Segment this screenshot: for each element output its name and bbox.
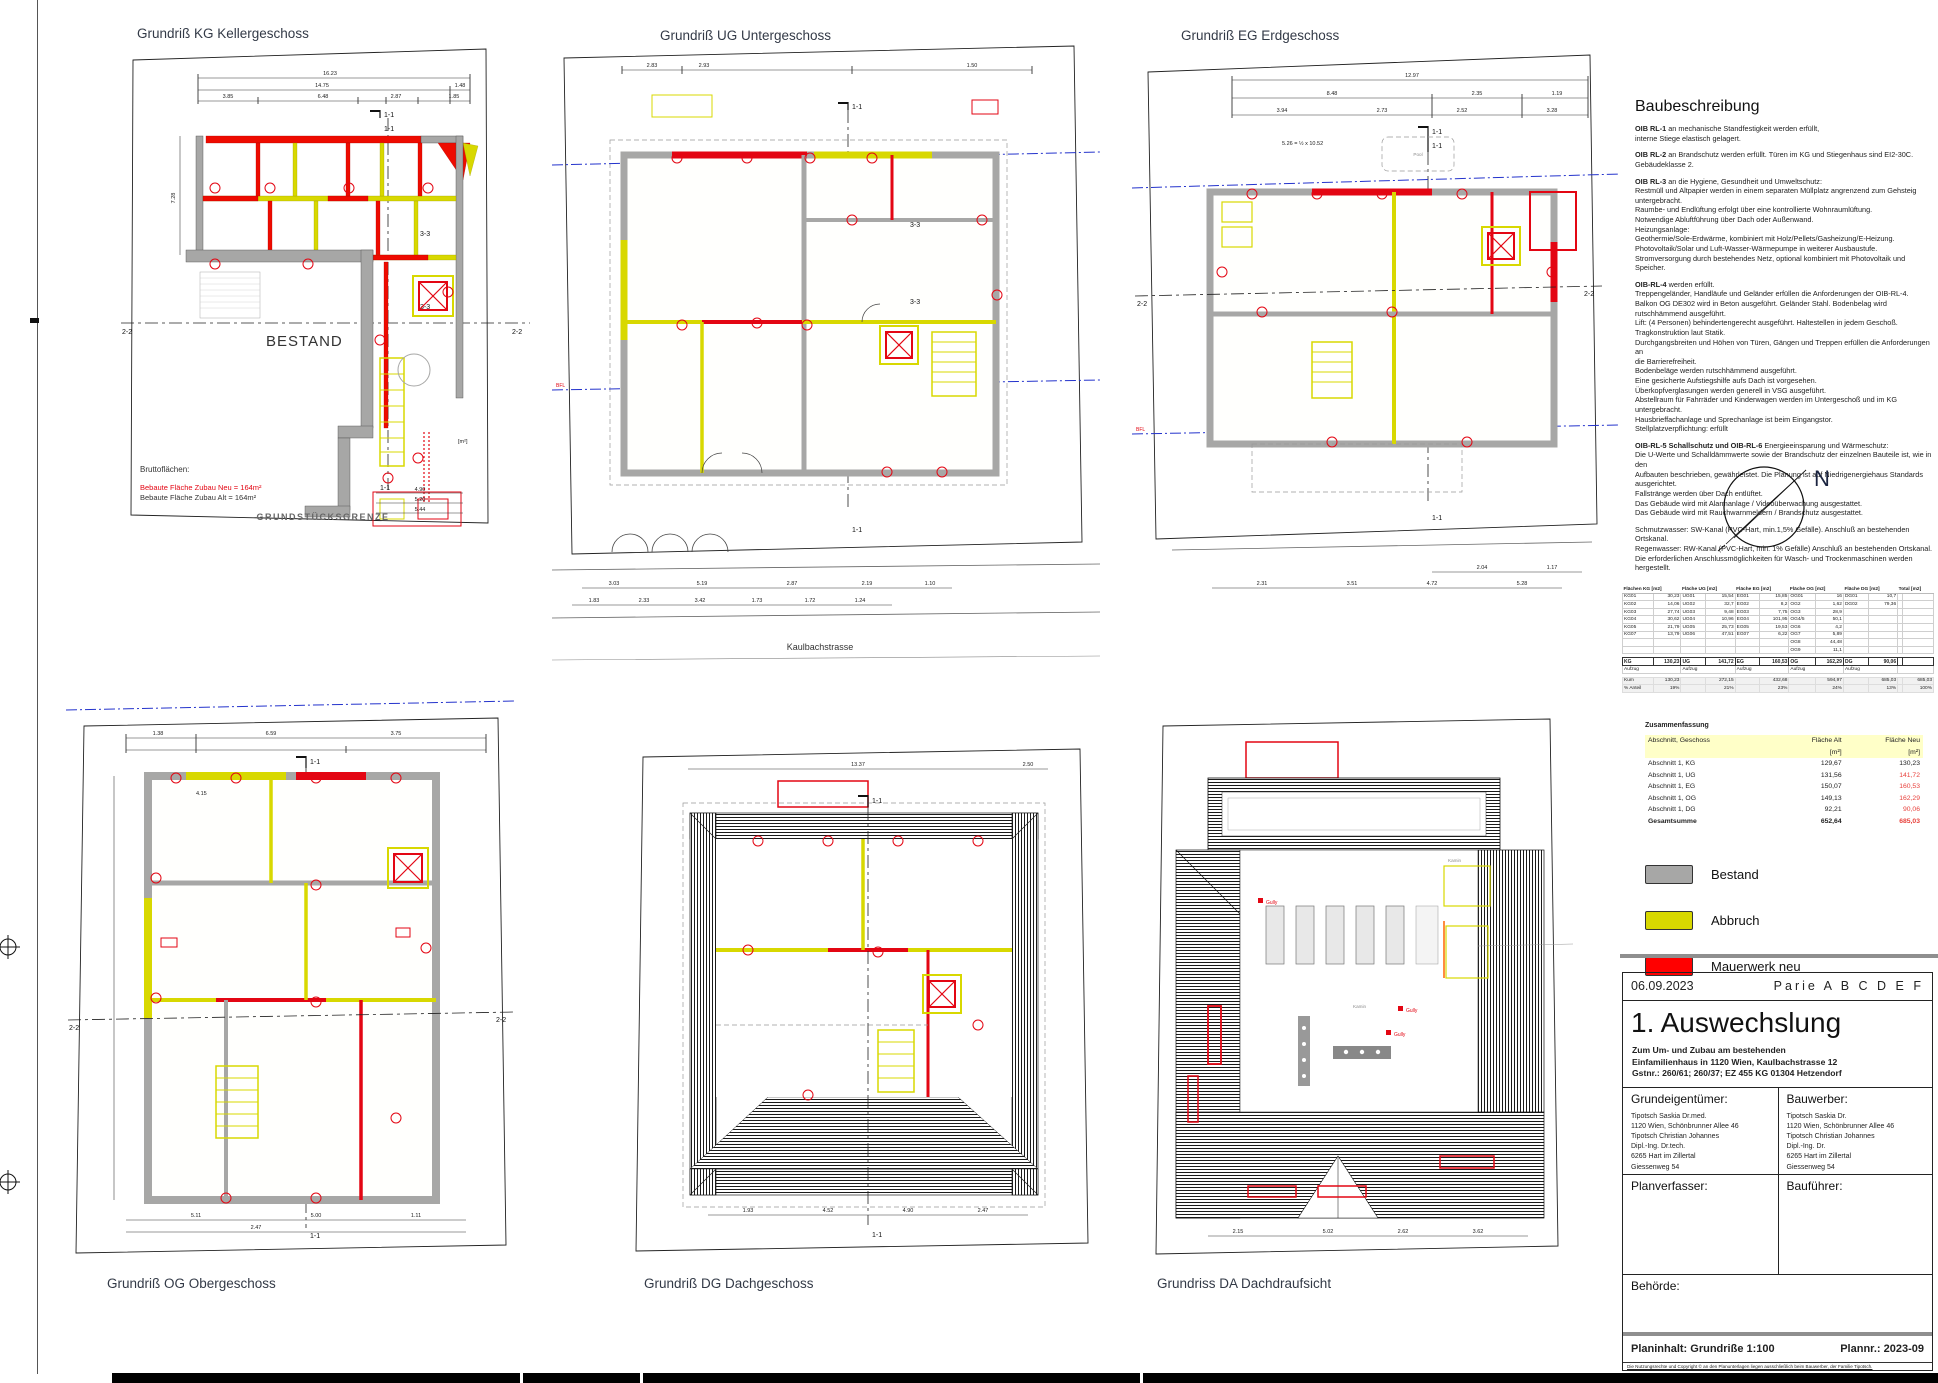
baubeschreibung-title: Baubeschreibung: [1635, 98, 1935, 116]
section-label-3-3: 3-3: [910, 222, 920, 229]
bfl-label: BFL: [556, 383, 565, 389]
dim-label: 2.15: [1233, 1229, 1244, 1235]
registration-mark-icon: [0, 933, 24, 961]
legend-swatch: [1645, 911, 1693, 930]
plan-date: 06.09.2023: [1631, 979, 1694, 993]
floorplan-kg: 16.23 14.75 1.48 3.85 6.48 2.87 1.85 7.2…: [118, 40, 538, 540]
dim-label: 3.85: [223, 94, 234, 100]
builder-label: Bauwerber:: [1787, 1092, 1925, 1106]
brutto-neu: Bebaute Fläche Zubau Neu = 164m²: [140, 483, 262, 492]
section-label-2-2: 2-2: [1584, 291, 1594, 298]
title-block: 06.09.2023 Parie A B C D E F 1. Auswechs…: [1622, 972, 1933, 1371]
fold-mark: [30, 318, 39, 323]
dim-label: 3.28: [1547, 108, 1558, 114]
dim-label: 5.02: [1323, 1229, 1334, 1235]
dim-label: 5.19: [697, 581, 708, 587]
dim-label: 2.04: [1477, 565, 1488, 571]
sheet-left-frame-line: [37, 0, 38, 1374]
dim-label: 5.20: [415, 497, 426, 503]
pool-label: Pool: [1413, 152, 1422, 157]
roofplan-da: Gully Gully Gully Kamin Kamin 2.15 5.02 …: [1148, 716, 1573, 1272]
legend-item: Abbruch: [1645, 904, 1935, 937]
baubeschreibung-paragraph: OIB RL-2 an Brandschutz werden erfüllt. …: [1635, 150, 1935, 169]
section-label-3-3: 3-3: [910, 299, 920, 306]
section-label-1-1: 1-1: [852, 527, 862, 534]
dim-label: 1.19: [1552, 91, 1563, 97]
plan-sheet: Grundriß KG Kellergeschoss Grundriß UG U…: [0, 0, 1938, 1383]
dim-label: 1.85: [449, 94, 460, 100]
dim-label: 6.59: [266, 731, 277, 737]
dim-label: 4.90: [903, 1208, 914, 1214]
dim-label: 6.48: [318, 94, 329, 100]
dim-label: 2.52: [1457, 108, 1468, 114]
dim-label: 8.48: [1327, 91, 1338, 97]
dim-label: 2.19: [862, 581, 873, 587]
baubeschreibung-paragraph: OIB-RL-4 werden erfüllt. Treppengeländer…: [1635, 280, 1935, 434]
authority-label: Behörde:: [1631, 1279, 1924, 1293]
plan-title-da: Grundriss DA Dachdraufsicht: [1157, 1276, 1331, 1291]
bestand-label: BESTAND: [266, 333, 343, 350]
gully-label: Gully: [1406, 1008, 1418, 1014]
section-label-1-1: 1-1: [380, 485, 390, 492]
section-label-2-2: 2-2: [1137, 301, 1147, 308]
dim-label: 1.73: [752, 598, 763, 604]
north-arrow: N: [1712, 452, 1862, 562]
legend-label: Bestand: [1711, 867, 1759, 882]
dim-label: 1.17: [1547, 565, 1558, 571]
dim-label: 1.11: [411, 1213, 421, 1219]
dim-label: 3.75: [391, 731, 402, 737]
dim-label: 2.35: [1472, 91, 1483, 97]
room-area-table: Flächen KG [m2]Fläche UG [m2]Fläche EG […: [1622, 586, 1934, 693]
dim-label: 2.47: [251, 1225, 262, 1231]
legend-swatch: [1645, 865, 1693, 884]
dim-label: 1.48: [455, 83, 466, 89]
plan-title-dg: Grundriß DG Dachgeschoss: [644, 1276, 814, 1291]
section-label-2-2: 2-2: [69, 1025, 79, 1032]
dim-label: 5.11: [191, 1213, 201, 1219]
dim-label: 16.23: [323, 71, 337, 77]
dim-label: 2.31: [1257, 581, 1268, 587]
registration-mark-icon: [0, 1168, 24, 1196]
zusammenfassung-table: Abschnitt, GeschossFläche AltFläche Neu[…: [1645, 735, 1923, 827]
dim-label: 2.50: [1023, 762, 1034, 768]
section-label-1-1: 1-1: [1432, 129, 1442, 136]
gully-label: Gully: [1394, 1032, 1406, 1038]
plan-title-eg: Grundriß EG Erdgeschoss: [1181, 28, 1339, 43]
gully-label: Gully: [1266, 900, 1278, 906]
owner-label: Grundeigentümer:: [1631, 1092, 1770, 1106]
dim-label: 5.00: [311, 1213, 322, 1219]
dim-label: 2.87: [391, 94, 402, 100]
dim-label: 2.87: [787, 581, 798, 587]
dim-label: 3.51: [1347, 581, 1358, 587]
north-label: N: [1814, 466, 1830, 491]
supervisor-label: Bauführer:: [1787, 1179, 1925, 1193]
section-label-1-1: 1-1: [872, 798, 882, 805]
section-label-2-2: 2-2: [496, 1017, 506, 1024]
floorplan-dg: 13.37 2.50 1-1: [628, 745, 1103, 1273]
section-label-1-1: 1-1: [872, 1232, 882, 1239]
dim-label: 5.28: [1517, 581, 1528, 587]
sheet-bottom-bar: [112, 1373, 1938, 1383]
floorplan-og: 1.38 6.59 3.75 1-1 4.15 2-2 2-2: [66, 698, 521, 1270]
kamin-label: Kamin: [1353, 1004, 1366, 1009]
section-label-1-1: 1-1: [1432, 143, 1442, 150]
section-label-2-2: 2-2: [122, 329, 132, 336]
plan-title-og: Grundriß OG Obergeschoss: [107, 1276, 276, 1291]
dim-label: 1.10: [925, 581, 936, 587]
section-label-1-1: 1-1: [384, 126, 394, 133]
dim-label: 3.94: [1277, 108, 1288, 114]
plan-description: Zum Um- und Zubau am bestehenden Einfami…: [1623, 1045, 1932, 1088]
dim-label: 1.38: [153, 731, 164, 737]
owner-details: Tipotsch Saskia Dr.med. 1120 Wien, Schön…: [1631, 1112, 1770, 1173]
floorplan-eg: 12.97 8.48 2.35 1.19 3.94 2.73 2.52 3.28…: [1132, 42, 1620, 617]
zusammenfassung-block: Zusammenfassung Abschnitt, GeschossFläch…: [1645, 722, 1923, 827]
dim-label: 3.42: [695, 598, 706, 604]
dim-label: 4.52: [823, 1208, 834, 1214]
dim-label: 3.03: [609, 581, 620, 587]
legend-item: Bestand: [1645, 858, 1935, 891]
brutto-alt: Bebaute Fläche Zubau Alt = 164m²: [140, 493, 257, 502]
grundstuecksgrenze-label: GRUNDSTÜCKSGRENZE: [256, 512, 389, 522]
dim-label: 4.72: [1427, 581, 1438, 587]
section-label-1-1: 1-1: [852, 104, 862, 111]
floorplan-ug: 2.83 2.93 1.50 1-1 BFL: [552, 40, 1100, 665]
dim-label: 4.15: [196, 791, 207, 797]
dim-label: 12.97: [1405, 73, 1419, 79]
dim-label: 13.37: [851, 762, 865, 768]
dim-label: 2.93: [699, 63, 710, 69]
street-label: Kaulbachstrasse: [787, 642, 854, 652]
section-label-3-3: 3-3: [420, 231, 430, 238]
dim-label: 2.73: [1377, 108, 1388, 114]
revision-letters: Parie A B C D E F: [1774, 979, 1924, 993]
baubeschreibung-paragraph: OIB RL-3 an die Hygiene, Gesundheit und …: [1635, 177, 1935, 273]
dim-label: 1.83: [589, 598, 600, 604]
dim-label: 1.24: [855, 598, 866, 604]
builder-details: Tipotsch Saskia Dr. 1120 Wien, Schönbrun…: [1787, 1112, 1925, 1173]
section-label-1-1: 1-1: [310, 759, 320, 766]
section-label-1-1: 1-1: [384, 112, 394, 119]
m2-label: [m²]: [458, 439, 468, 445]
section-label-1-1: 1-1: [1432, 515, 1442, 522]
dim-label: 2.33: [639, 598, 650, 604]
planner-label: Planverfasser:: [1631, 1179, 1770, 1193]
dim-label: 1.72: [805, 598, 816, 604]
dim-label: 1.50: [967, 63, 978, 69]
dim-label: 2.47: [978, 1208, 989, 1214]
dim-note: 5.26 = ½ x 10.52: [1282, 140, 1323, 147]
plan-content-label: Planinhalt: Grundriße 1:100: [1631, 1343, 1775, 1355]
baubeschreibung-paragraph: OIB RL-1 an mechanische Standfestigkeit …: [1635, 124, 1935, 143]
plan-number-label: Plannr.: 2023-09: [1840, 1343, 1924, 1355]
plan-title-kg: Grundriß KG Kellergeschoss: [137, 26, 309, 41]
section-label-2-2: 2-2: [512, 329, 522, 336]
dim-label: 4.90: [415, 487, 426, 493]
legend-divider: [1620, 954, 1938, 958]
dim-label: 2.83: [647, 63, 658, 69]
legend-label: Abbruch: [1711, 913, 1759, 928]
zusammenfassung-title: Zusammenfassung: [1645, 722, 1923, 729]
dim-label: 14.75: [315, 83, 329, 89]
plan-main-title: 1. Auswechslung: [1623, 1001, 1932, 1046]
kamin-label: Kamin: [1448, 858, 1461, 863]
dim-label: 3.62: [1473, 1229, 1484, 1235]
section-label-1-1: 1-1: [310, 1233, 320, 1240]
dim-label: 7.28: [171, 193, 177, 204]
copyright-fineprint: Die Nutzungsrechte und Copyright © an de…: [1623, 1362, 1932, 1370]
dim-label: 2.62: [1398, 1229, 1409, 1235]
bfl-label: BFL: [1136, 427, 1145, 433]
brutto-title: Bruttoflächen:: [140, 465, 189, 474]
dim-label: 5.44: [415, 507, 426, 513]
dim-label: 1.93: [743, 1208, 754, 1214]
